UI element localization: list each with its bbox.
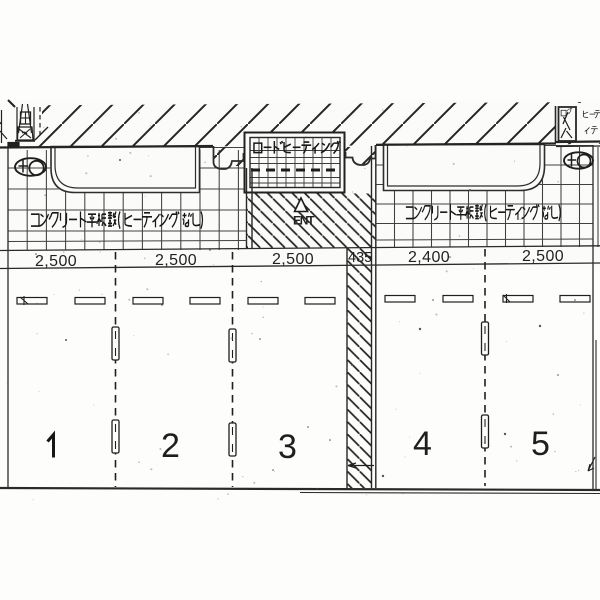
svg-text:2: 2 [161,427,180,465]
svg-text:4: 4 [413,425,432,463]
svg-text:3: 3 [278,428,297,466]
svg-text:5: 5 [531,425,550,463]
